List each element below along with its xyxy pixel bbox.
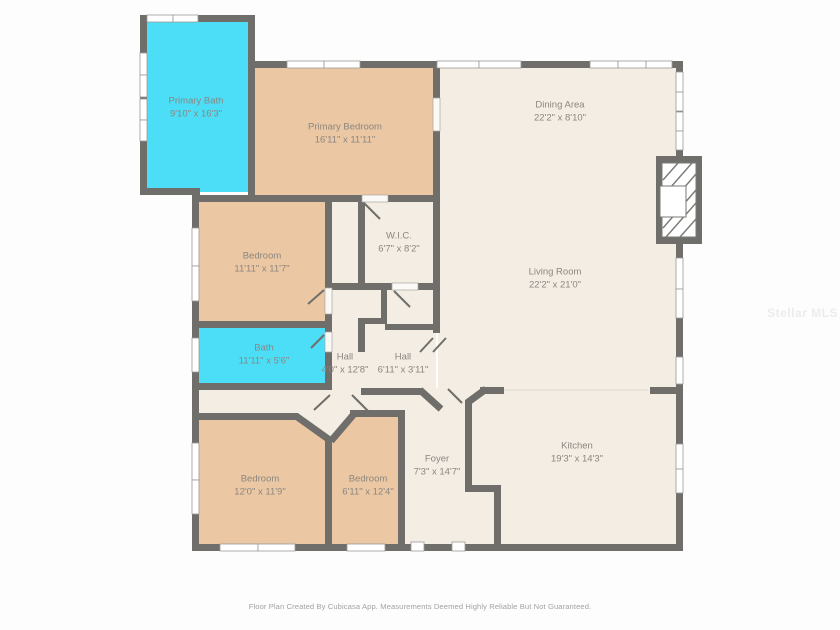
room-label-primary-bedroom: Primary Bedroom 16'11" x 11'11"	[308, 122, 382, 147]
window	[676, 112, 683, 131]
room-label-primary-bath: Primary Bath 9'10" x 16'3"	[169, 96, 224, 121]
window	[173, 15, 198, 22]
room-label-bedroom-4: Bedroom 6'11" x 12'4"	[342, 474, 393, 499]
window	[140, 99, 147, 120]
room-dims: 6'11" x 12'4"	[342, 486, 393, 499]
entry-door-frame	[452, 542, 465, 551]
window	[590, 61, 618, 68]
room-name: Kitchen	[551, 441, 603, 454]
window	[140, 53, 147, 75]
room-name: Hall	[322, 352, 369, 365]
room-name: W.I.C.	[378, 231, 420, 244]
room-label-dining-area: Dining Area 22'2" x 8'10"	[534, 100, 586, 125]
entry-door-frame	[411, 542, 424, 551]
room-name: Hall	[378, 352, 429, 365]
window	[192, 228, 199, 266]
room-label-wic: W.I.C. 6'7" x 8'2"	[378, 231, 420, 256]
door-opening	[362, 195, 388, 202]
room-dims: 11'11" x 5'6"	[239, 355, 290, 368]
room-label-hall-1: Hall 4'0" x 12'8"	[322, 352, 369, 377]
room-dims: 7'3" x 14'7"	[414, 466, 461, 479]
window	[618, 61, 646, 68]
window	[347, 544, 385, 551]
window	[192, 443, 199, 480]
room-dims: 4'0" x 12'8"	[322, 364, 369, 377]
room-label-foyer: Foyer 7'3" x 14'7"	[414, 454, 461, 479]
room-label-bedroom-2: Bedroom 11'11" x 11'7"	[234, 251, 289, 276]
floor-plan-drawing	[0, 0, 840, 630]
fireplace-icon	[656, 156, 702, 244]
room-name: Primary Bedroom	[308, 122, 382, 135]
room-dims: 6'7" x 8'2"	[378, 243, 420, 256]
door-opening	[433, 98, 440, 131]
room-name: Bath	[239, 343, 290, 356]
room-dims: 19'3" x 14'3"	[551, 453, 603, 466]
window	[324, 61, 360, 68]
room-dims: 22'2" x 8'10"	[534, 112, 586, 125]
window	[258, 544, 295, 551]
window	[287, 61, 324, 68]
window	[676, 131, 683, 150]
door-opening	[325, 332, 332, 352]
room-label-living-room: Living Room 22'2" x 21'0"	[529, 267, 582, 292]
window	[140, 75, 147, 97]
window	[676, 444, 683, 469]
window	[147, 15, 173, 22]
room-name: Living Room	[529, 267, 582, 280]
room-dims: 6'11" x 3'11"	[378, 364, 429, 377]
room-label-bath-2: Bath 11'11" x 5'6"	[239, 343, 290, 368]
window	[676, 72, 683, 92]
room-name: Bedroom	[234, 251, 289, 264]
window	[676, 289, 683, 318]
room-dims: 16'11" x 11'11"	[308, 134, 382, 147]
floor-plan-page: Primary Bath 9'10" x 16'3" Primary Bedro…	[0, 0, 840, 630]
window	[437, 61, 479, 68]
window	[140, 120, 147, 141]
window	[676, 357, 683, 384]
window	[646, 61, 672, 68]
window	[192, 338, 199, 372]
window	[220, 544, 258, 551]
window	[676, 258, 683, 289]
room-name: Dining Area	[534, 100, 586, 113]
room-label-hall-2: Hall 6'11" x 3'11"	[378, 352, 429, 377]
room-name: Bedroom	[342, 474, 393, 487]
room-label-bedroom-3: Bedroom 12'0" x 11'9"	[234, 474, 285, 499]
room-name: Primary Bath	[169, 96, 224, 109]
window	[192, 266, 199, 301]
room-dims: 12'0" x 11'9"	[234, 486, 285, 499]
room-dims: 11'11" x 11'7"	[234, 263, 289, 276]
room-name: Foyer	[414, 454, 461, 467]
window	[676, 469, 683, 493]
room-dims: 9'10" x 16'3"	[169, 108, 224, 121]
window	[192, 480, 199, 514]
watermark: Stellar MLS	[767, 306, 838, 320]
room-dims: 22'2" x 21'0"	[529, 279, 582, 292]
door-opening	[325, 288, 332, 314]
window	[676, 92, 683, 111]
room-label-kitchen: Kitchen 19'3" x 14'3"	[551, 441, 603, 466]
room-name: Bedroom	[234, 474, 285, 487]
door-opening	[392, 283, 418, 290]
footer-disclaimer: Floor Plan Created By Cubicasa App. Meas…	[0, 602, 840, 611]
firebox	[660, 186, 686, 217]
window	[479, 61, 521, 68]
